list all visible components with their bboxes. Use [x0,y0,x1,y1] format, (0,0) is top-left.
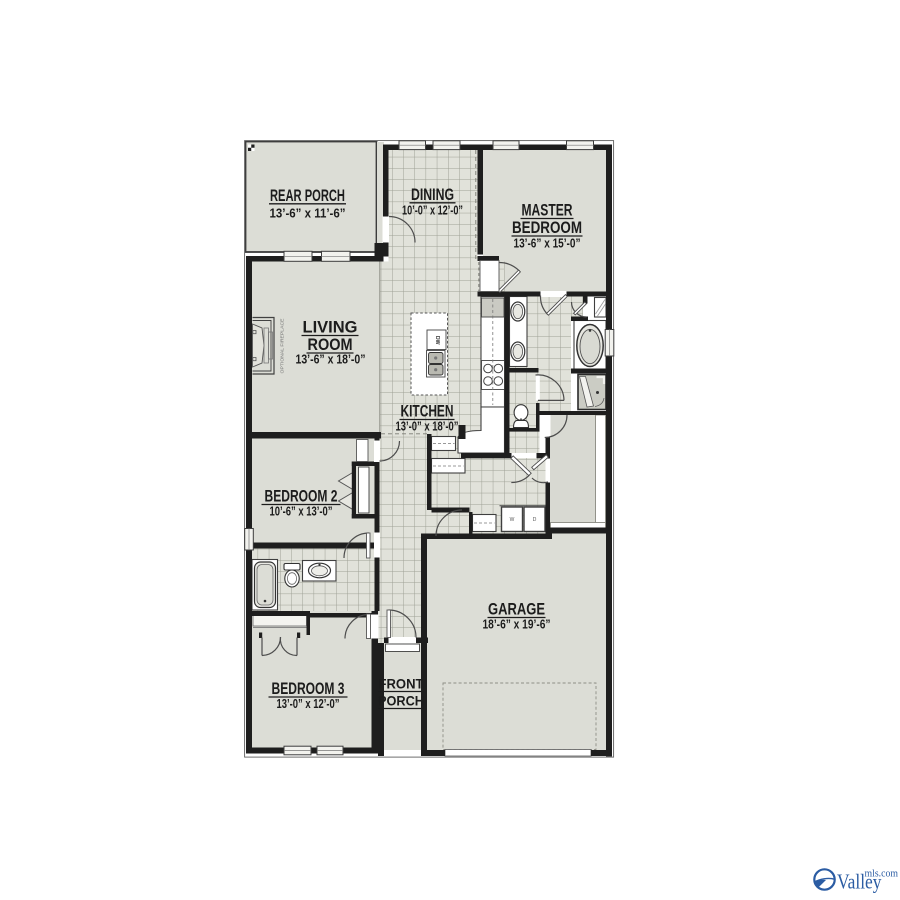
svg-text:10’-0” x 12’-0”: 10’-0” x 12’-0” [402,204,463,218]
svg-text:18’-6” x 19’-6”: 18’-6” x 19’-6” [483,618,551,632]
svg-text:PORCH: PORCH [378,694,424,709]
svg-text:REAR PORCH: REAR PORCH [270,187,345,205]
svg-text:BEDROOM 3: BEDROOM 3 [272,680,345,698]
svg-text:13’-0” x 12’-0”: 13’-0” x 12’-0” [277,697,340,711]
svg-text:OPTIONAL FIREPLACE: OPTIONAL FIREPLACE [280,318,285,373]
svg-text:FRONT: FRONT [379,677,425,692]
svg-text:BEDROOM: BEDROOM [512,219,582,237]
svg-text:13’-6” x 18’-0”: 13’-6” x 18’-0” [296,353,366,367]
svg-text:LIVING: LIVING [303,319,358,337]
svg-text:13’-6” x 11’-6”: 13’-6” x 11’-6” [270,207,346,221]
svg-text:13’-6” x 15’-0”: 13’-6” x 15’-0” [514,237,581,251]
svg-text:ROOM: ROOM [308,336,353,354]
svg-text:DW: DW [434,336,440,345]
svg-text:DINING: DINING [411,186,454,204]
svg-text:13’-0” x 18’-0”: 13’-0” x 18’-0” [396,420,459,434]
svg-text:MASTER: MASTER [522,202,573,220]
svg-text:D: D [533,517,537,523]
svg-text:mls.com: mls.com [865,869,899,880]
svg-text:10’-6” x 13’-0”: 10’-6” x 13’-0” [270,505,333,519]
svg-text:BEDROOM 2: BEDROOM 2 [265,488,338,506]
svg-text:W: W [510,517,515,523]
svg-text:GARAGE: GARAGE [488,601,545,619]
svg-text:KITCHEN: KITCHEN [401,403,454,421]
